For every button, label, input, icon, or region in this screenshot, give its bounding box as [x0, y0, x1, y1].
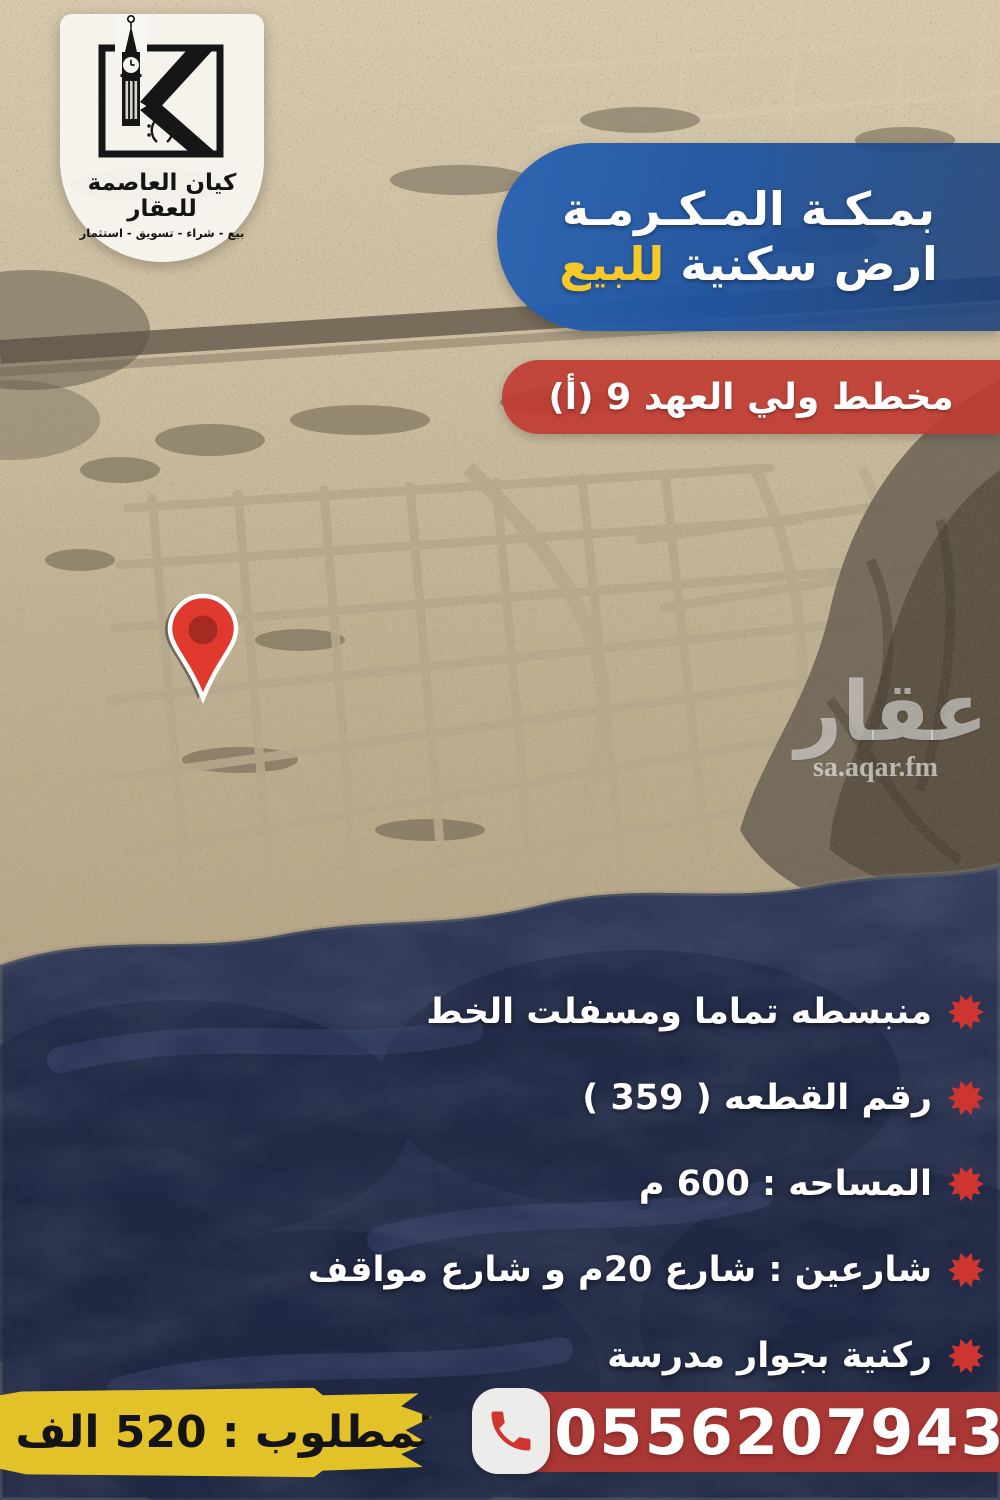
company-logo: كيان العاصمة للعقار بيع - شراء - تسويق -…: [60, 14, 264, 262]
map-pin-icon: [160, 591, 246, 703]
company-name: كيان العاصمة للعقار: [60, 170, 264, 222]
headline-offer: ارض سكنية للبيع: [559, 237, 938, 292]
feature-row: رقم القطعه ( 359 ): [582, 1078, 984, 1118]
feature-list: منبسطه تماما ومسفلت الخط رقم القطعه ( 35…: [308, 992, 984, 1376]
feature-text: منبسطه تماما ومسفلت الخط: [426, 992, 932, 1032]
headline-city: بمـكـة المـكـرمـة: [562, 182, 935, 237]
feature-row: شارعين : شارع 20م و شارع مواقف: [308, 1250, 984, 1290]
starburst-bullet-icon: [948, 994, 984, 1030]
headline-banner: بمـكـة المـكـرمـة ارض سكنية للبيع: [497, 143, 1000, 331]
company-tagline: بيع - شراء - تسويق - استثمار: [60, 226, 264, 240]
plan-name-label: مخطط ولي العهد 9 (أ): [548, 377, 953, 418]
phone-number: 0556207943: [506, 1396, 1000, 1469]
feature-row: منبسطه تماما ومسفلت الخط: [426, 992, 984, 1032]
phone-banner: 0556207943: [512, 1392, 1000, 1472]
feature-text: ركنية بجوار مدرسة: [607, 1336, 932, 1376]
feature-row: المساحه : 600 م: [639, 1164, 984, 1204]
feature-row: ركنية بجوار مدرسة: [607, 1336, 984, 1376]
starburst-bullet-icon: [948, 1252, 984, 1288]
real-estate-ad-poster: عقار sa.aqar.fm: [0, 0, 1000, 1500]
price-label: المطلوب : 520 الف: [15, 1407, 448, 1458]
clock-tower-k-emblem-icon: [60, 14, 260, 174]
feature-text: المساحه : 600 م: [639, 1164, 932, 1204]
plan-name-badge: مخطط ولي العهد 9 (أ): [502, 360, 1000, 434]
phone-icon-badge: [472, 1388, 550, 1474]
feature-text: رقم القطعه ( 359 ): [582, 1078, 932, 1118]
phone-icon: [485, 1405, 537, 1457]
watermark-site: sa.aqar.fm: [813, 752, 938, 784]
starburst-bullet-icon: [948, 1338, 984, 1374]
headline-offer-type: ارض سكنية: [680, 237, 938, 291]
headline-for-sale: للبيع: [559, 237, 664, 291]
watermark-brand: عقار: [795, 672, 988, 754]
price-banner: المطلوب : 520 الف: [0, 1386, 436, 1478]
feature-text: شارعين : شارع 20م و شارع مواقف: [308, 1250, 932, 1290]
starburst-bullet-icon: [948, 1166, 984, 1202]
starburst-bullet-icon: [948, 1080, 984, 1116]
